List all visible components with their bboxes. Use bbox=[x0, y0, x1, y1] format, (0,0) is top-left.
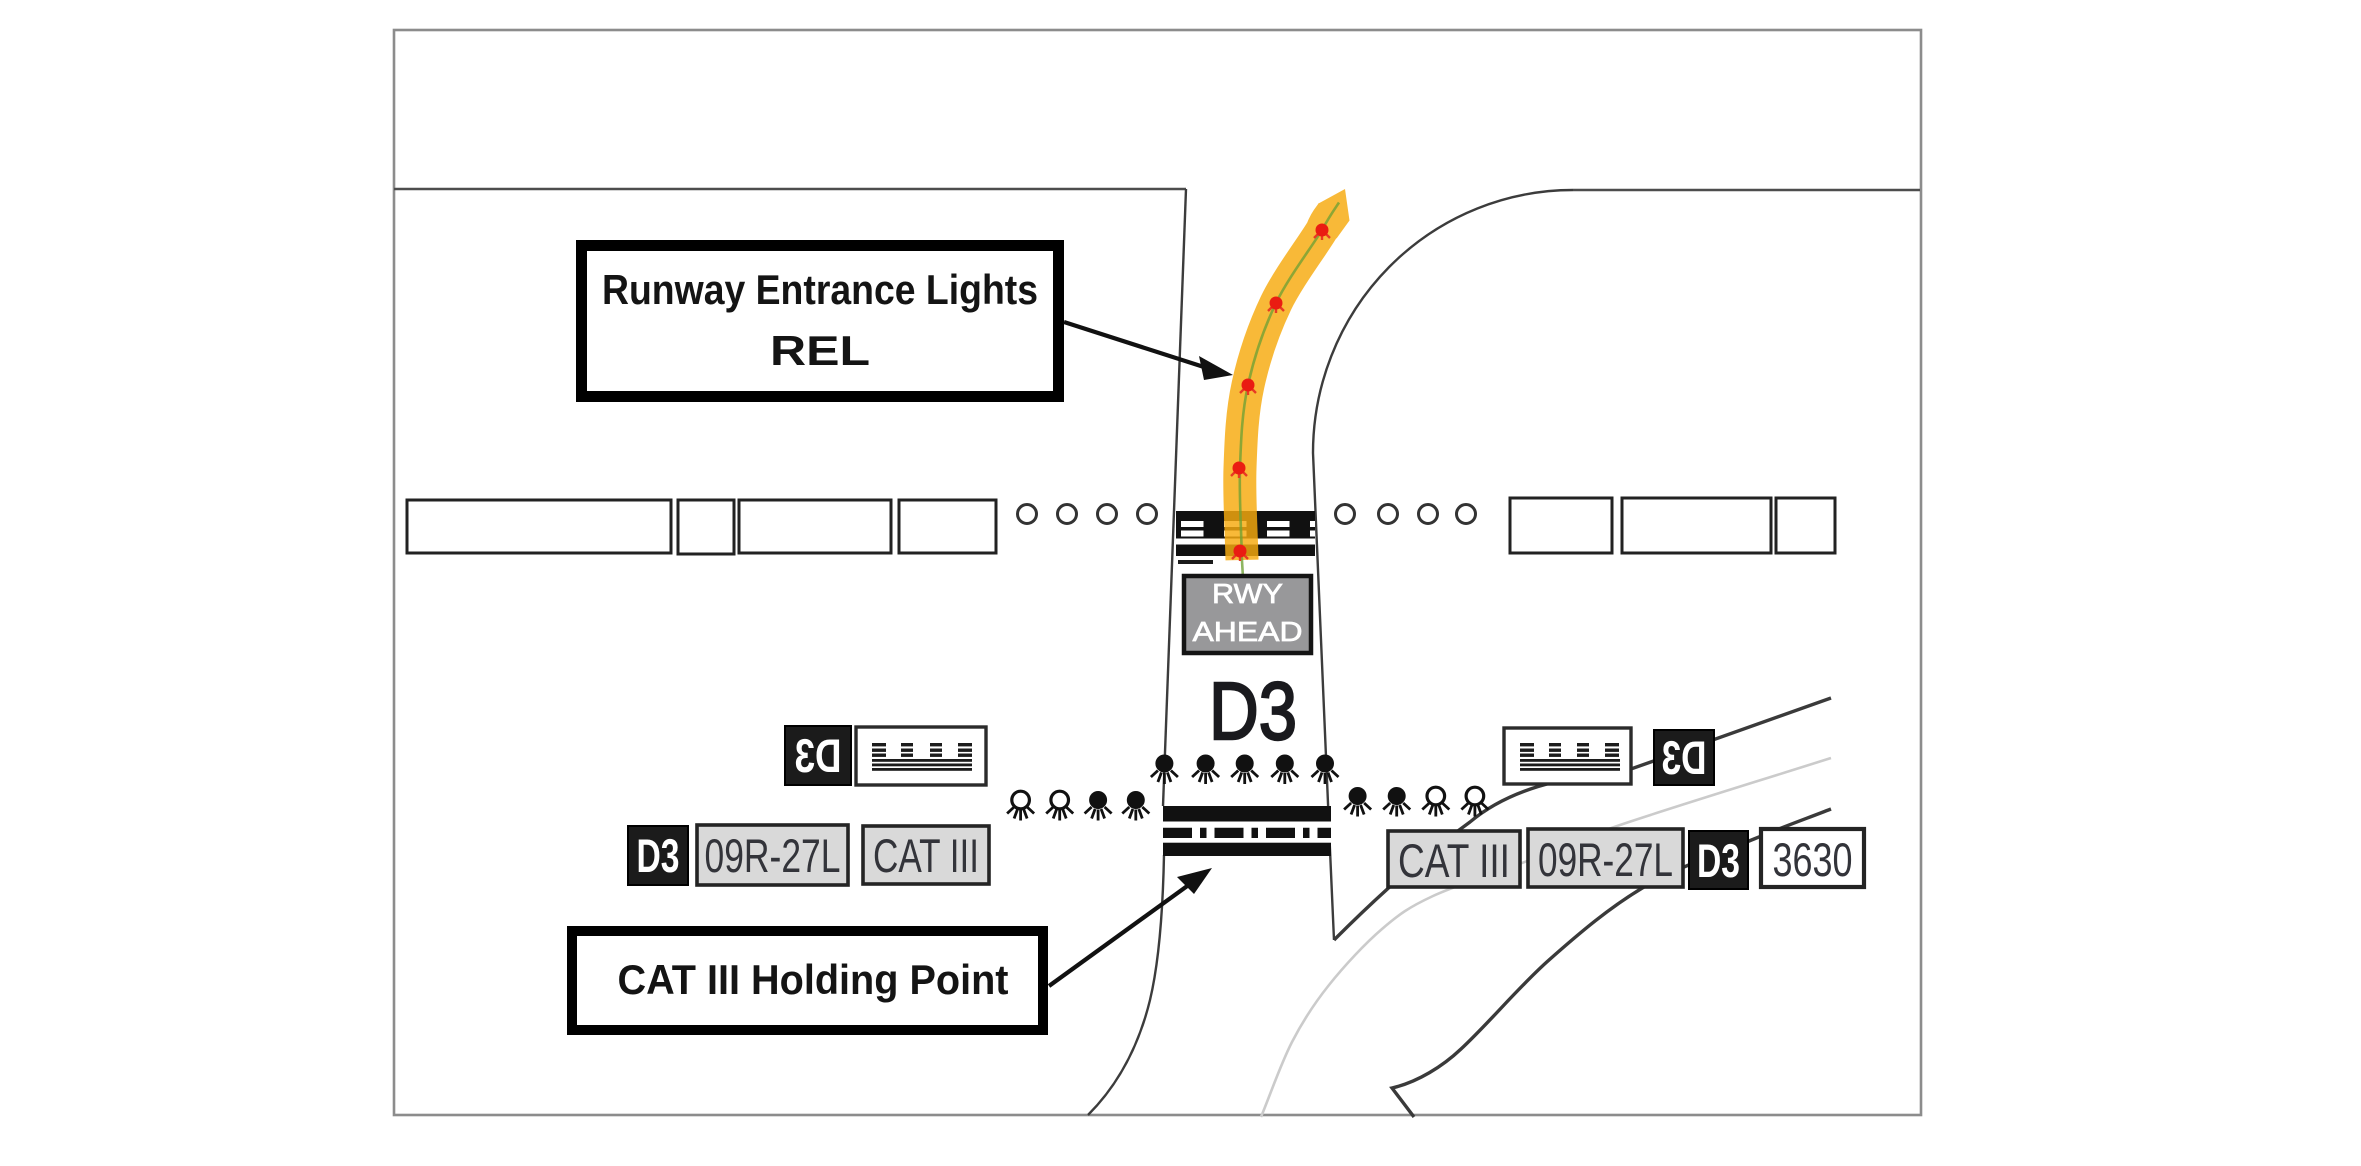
svg-text:D3: D3 bbox=[795, 729, 842, 782]
svg-text:CAT III Holding Point: CAT III Holding Point bbox=[618, 956, 1009, 1003]
svg-text:CAT III: CAT III bbox=[873, 829, 979, 882]
svg-text:D3: D3 bbox=[1662, 731, 1707, 784]
svg-text:RWY: RWY bbox=[1212, 578, 1283, 609]
svg-text:AHEAD: AHEAD bbox=[1193, 616, 1303, 647]
svg-text:CAT III: CAT III bbox=[1398, 834, 1510, 887]
svg-text:09R-27L: 09R-27L bbox=[705, 829, 841, 882]
svg-text:REL: REL bbox=[770, 327, 870, 374]
svg-text:D3: D3 bbox=[1209, 666, 1297, 757]
svg-text:3630: 3630 bbox=[1773, 833, 1853, 886]
svg-text:Runway Entrance Lights: Runway Entrance Lights bbox=[602, 266, 1038, 313]
svg-text:D3: D3 bbox=[637, 829, 680, 882]
svg-text:09R-27L: 09R-27L bbox=[1538, 833, 1673, 886]
svg-text:D3: D3 bbox=[1697, 834, 1740, 887]
